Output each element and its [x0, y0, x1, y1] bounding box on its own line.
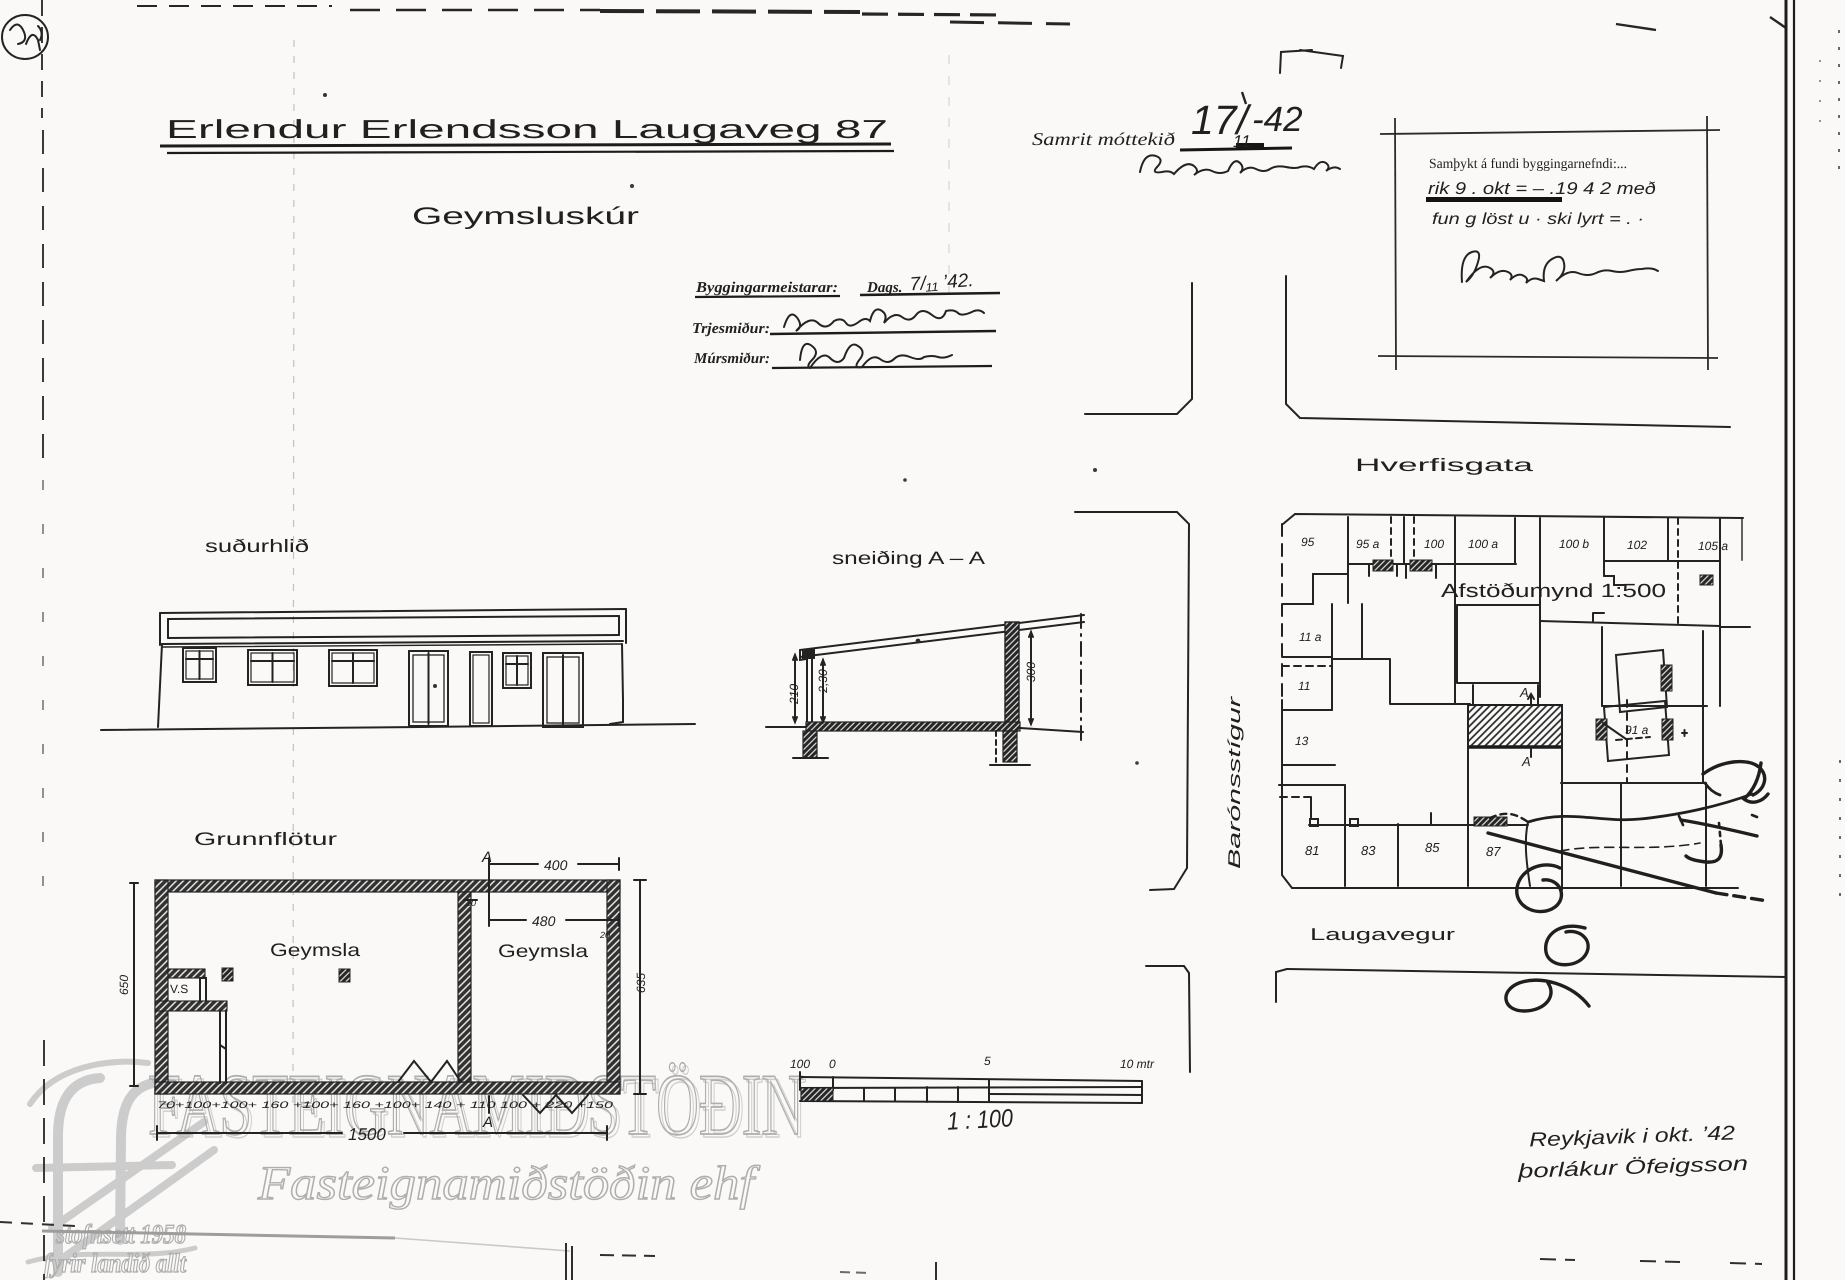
svg-text:fyrir landið allt: fyrir landið allt: [44, 1248, 187, 1278]
svg-text:0: 0: [829, 1057, 836, 1071]
svg-text:Geymsla: Geymsla: [498, 941, 589, 961]
svg-text:11: 11: [1298, 679, 1310, 693]
svg-text:91 a: 91 a: [1625, 723, 1649, 737]
svg-text:650: 650: [117, 975, 131, 995]
svg-text:11 a: 11 a: [1299, 630, 1322, 644]
svg-text:suðurhlið: suðurhlið: [205, 536, 309, 556]
svg-text:Múrsmiður:: Múrsmiður:: [693, 351, 770, 367]
svg-text:10 mtr: 10 mtr: [1120, 1057, 1155, 1071]
svg-text:70+100+100+ 160 +100+ 160 +100: 70+100+100+ 160 +100+ 160 +100+ 140 + 11…: [157, 1100, 614, 1111]
svg-text:V.S: V.S: [170, 982, 188, 996]
svg-text:Samrit móttekið: Samrit móttekið: [1032, 129, 1175, 149]
svg-text:sneiðing A – A: sneiðing A – A: [832, 548, 985, 568]
svg-text:85: 85: [1425, 840, 1440, 855]
svg-text:7/₁₁ ’42.: 7/₁₁ ’42.: [909, 270, 974, 295]
svg-text:fun g löst u · ski lyrt = .: fun g löst u · ski lyrt = . ·: [1432, 211, 1644, 228]
svg-text:95 a: 95 a: [1356, 537, 1380, 551]
svg-text:Byggingarmeistarar:: Byggingarmeistarar:: [695, 280, 838, 296]
svg-text:A: A: [482, 1114, 493, 1131]
svg-text:1 : 100: 1 : 100: [946, 1104, 1013, 1135]
svg-text:A: A: [1521, 754, 1531, 769]
svg-text:Barónsstígur: Barónsstígur: [1225, 695, 1244, 869]
svg-text:100: 100: [790, 1057, 810, 1071]
svg-text:-42: -42: [1252, 100, 1303, 139]
svg-text:100 a: 100 a: [1468, 537, 1498, 551]
svg-text:1500: 1500: [348, 1125, 386, 1144]
svg-text:Grunnflötur: Grunnflötur: [194, 829, 337, 849]
svg-text:Laugavegur: Laugavegur: [1310, 925, 1456, 944]
svg-text:100: 100: [1424, 537, 1444, 551]
svg-text:Samþykt á fundi byggingarnefnd: Samþykt á fundi byggingarnefndi:...: [1429, 157, 1627, 172]
svg-text:Hverfisgata: Hverfisgata: [1355, 455, 1535, 475]
svg-text:13: 13: [1295, 734, 1309, 748]
svg-text:11: 11: [1233, 132, 1251, 151]
svg-text:400: 400: [544, 857, 568, 873]
svg-text:Afstöðumynd 1:500: Afstöðumynd 1:500: [1441, 581, 1666, 602]
svg-text:rik 9 . okt = – .19 4 2 með: rik 9 . okt = – .19 4 2 með: [1428, 179, 1656, 198]
svg-text:95: 95: [1301, 535, 1315, 549]
svg-text:102: 102: [1627, 538, 1647, 552]
svg-text:Geymsla: Geymsla: [270, 940, 361, 960]
svg-text:5: 5: [984, 1054, 991, 1068]
svg-text:105 a: 105 a: [1698, 539, 1728, 553]
svg-text:A: A: [1519, 685, 1529, 700]
svg-text:81: 81: [1305, 843, 1319, 858]
svg-text:480: 480: [532, 913, 556, 929]
svg-text:83: 83: [1361, 843, 1376, 858]
svg-text:210: 210: [787, 684, 801, 705]
svg-text:2,30: 2,30: [816, 669, 830, 694]
svg-text:Erlendur Erlendsson Laugaveg: Erlendur Erlendsson Laugaveg 87: [166, 114, 888, 144]
svg-text:100 b: 100 b: [1559, 537, 1589, 551]
svg-text:Fasteignamiðstöðin ehf: Fasteignamiðstöðin ehf: [257, 1157, 760, 1210]
svg-text:Trjesmiður:: Trjesmiður:: [692, 321, 770, 337]
svg-text:87: 87: [1486, 844, 1501, 859]
svg-text:635: 635: [634, 973, 648, 993]
svg-text:300: 300: [1024, 662, 1038, 682]
svg-text:20: 20: [599, 930, 610, 940]
svg-text:Geymsluskúr: Geymsluskúr: [412, 203, 639, 230]
